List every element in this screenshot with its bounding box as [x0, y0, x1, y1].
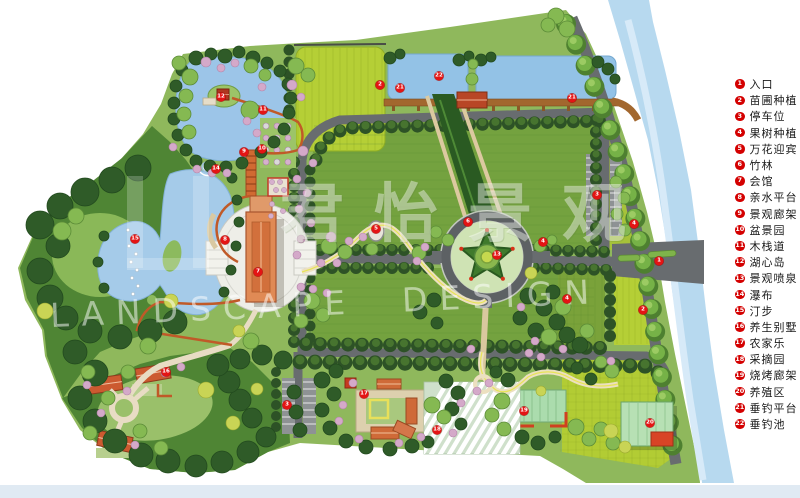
legend-number-badge: 10: [735, 225, 745, 235]
site-plan-drawing: [0, 0, 800, 498]
legend-item: 20养殖区: [735, 384, 798, 400]
legend-number-badge: 12: [735, 257, 745, 267]
legend-label: 养殖区: [750, 384, 786, 400]
legend-label: 养生别墅: [750, 319, 798, 335]
legend-label: 垂钓平台: [750, 400, 798, 416]
legend-item: 14瀑布: [735, 286, 798, 302]
legend-number-badge: 22: [735, 419, 745, 429]
legend-label: 万花迎宾: [750, 141, 798, 157]
legend-item: 3停车位: [735, 108, 798, 124]
legend-label: 会馆: [750, 173, 774, 189]
legend-item: 16养生别墅: [735, 319, 798, 335]
legend-number-badge: 20: [735, 387, 745, 397]
legend-label: 烧烤廊架: [750, 367, 798, 383]
legend-number-badge: 16: [735, 322, 745, 332]
legend-number-badge: 17: [735, 338, 745, 348]
legend-item: 9景观廊架: [735, 206, 798, 222]
legend-item: 5万花迎宾: [735, 141, 798, 157]
bottom-water-strip: [0, 485, 800, 498]
legend-label: 亲水平台: [750, 189, 798, 205]
legend-number-badge: 1: [735, 79, 745, 89]
legend-item: 17农家乐: [735, 335, 798, 351]
legend-label: 垂钓池: [750, 416, 786, 432]
fishing-platform: [384, 99, 618, 106]
legend-item: 15汀步: [735, 303, 798, 319]
legend-number-badge: 7: [735, 176, 745, 186]
legend-item: 4果树种植: [735, 125, 798, 141]
legend-label: 停车位: [750, 108, 786, 124]
legend-item: 7会馆: [735, 173, 798, 189]
legend-item: 13景观喷泉: [735, 270, 798, 286]
legend-label: 盆景园: [750, 222, 786, 238]
legend-item: 1入口: [735, 76, 798, 92]
legend-number-badge: 18: [735, 355, 745, 365]
fountain-center: [481, 251, 493, 263]
legend: 1入口2苗圃种植3停车位4果树种植5万花迎宾6竹林7会馆8亲水平台9景观廊架10…: [735, 76, 798, 432]
legend-number-badge: 19: [735, 371, 745, 381]
masterplan-canvas: 君怡景观 LANDSCAPE DESIGN 122334445678910111…: [0, 0, 800, 498]
legend-item: 21垂钓平台: [735, 400, 798, 416]
legend-number-badge: 13: [735, 274, 745, 284]
legend-label: 木栈道: [750, 238, 786, 254]
legend-number-badge: 9: [735, 209, 745, 219]
legend-number-badge: 3: [735, 112, 745, 122]
legend-label: 景观廊架: [750, 206, 798, 222]
legend-number-badge: 21: [735, 403, 745, 413]
pergola: [246, 150, 256, 196]
legend-item: 10盆景园: [735, 222, 798, 238]
legend-item: 2苗圃种植: [735, 92, 798, 108]
legend-label: 湖心岛: [750, 254, 786, 270]
entrance-median: [618, 255, 640, 262]
field-top-edge: [294, 44, 386, 45]
legend-item: 8亲水平台: [735, 189, 798, 205]
legend-label: 采摘园: [750, 351, 786, 367]
legend-number-badge: 14: [735, 290, 745, 300]
legend-label: 入口: [750, 76, 774, 92]
pond-pavilion: [457, 92, 487, 108]
legend-number-badge: 4: [735, 128, 745, 138]
legend-number-badge: 2: [735, 96, 745, 106]
legend-label: 农家乐: [750, 335, 786, 351]
legend-label: 苗圃种植: [750, 92, 798, 108]
legend-label: 果树种植: [750, 125, 798, 141]
legend-item: 12湖心岛: [735, 254, 798, 270]
legend-number-badge: 15: [735, 306, 745, 316]
legend-item: 11木栈道: [735, 238, 798, 254]
legend-label: 汀步: [750, 303, 774, 319]
legend-item: 22垂钓池: [735, 416, 798, 432]
legend-number-badge: 8: [735, 193, 745, 203]
legend-number-badge: 11: [735, 241, 745, 251]
legend-label: 瀑布: [750, 287, 774, 303]
legend-number-badge: 5: [735, 144, 745, 154]
legend-label: 景观喷泉: [750, 270, 798, 286]
legend-label: 竹林: [750, 157, 774, 173]
legend-item: 6竹林: [735, 157, 798, 173]
legend-item: 19烧烤廊架: [735, 367, 798, 383]
legend-item: 18采摘园: [735, 351, 798, 367]
legend-number-badge: 6: [735, 160, 745, 170]
